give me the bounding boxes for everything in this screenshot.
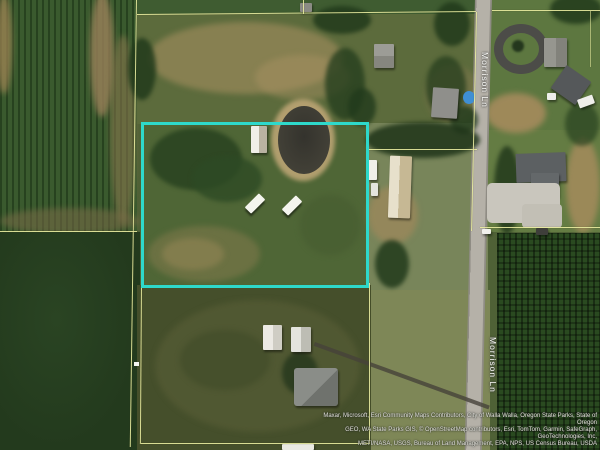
vehicle: [547, 93, 556, 100]
house: [294, 368, 338, 406]
grass-mottle: [180, 330, 270, 390]
attribution-line: METI/NASA, USGS, Bureau of Land Manageme…: [307, 441, 597, 448]
tree-cluster: [434, 2, 470, 46]
map-attribution: Maxar, Microsoft, Esri Community Maps Co…: [307, 413, 597, 448]
pasture-field: [0, 232, 140, 450]
parcel-line-horizontal: [492, 10, 600, 11]
trailer: [368, 160, 377, 180]
tree: [512, 40, 524, 52]
house: [431, 87, 459, 119]
house: [544, 38, 567, 67]
shed-building: [300, 3, 312, 12]
tree-cluster: [128, 38, 156, 100]
barn: [388, 156, 412, 219]
vehicle: [482, 229, 491, 234]
parcel-line-horizontal: [366, 149, 477, 150]
garage-building: [263, 325, 282, 350]
road-label-morrison-ln: Morrison Ln: [480, 52, 490, 108]
parcel-line-vertical: [590, 11, 591, 67]
dirt-patch: [486, 93, 546, 133]
attribution-line: Maxar, Microsoft, Esri Community Maps Co…: [307, 413, 597, 427]
satellite-map[interactable]: Morrison Ln Morrison Ln Maxar, Microsoft…: [0, 0, 600, 450]
tree-cluster: [348, 88, 376, 126]
attribution-line: GEO, WA State Parks GIS, © OpenStreetMap…: [307, 427, 597, 441]
tree-row: [366, 122, 480, 158]
dirt-patch: [566, 138, 600, 233]
vehicle: [536, 228, 548, 235]
parcel-line-horizontal: [0, 231, 137, 232]
selected-parcel-outline[interactable]: [141, 122, 369, 288]
garage-building: [291, 327, 311, 352]
road-label-morrison-ln: Morrison Ln: [488, 337, 498, 393]
tree-cluster: [313, 6, 371, 34]
parcel-line-horizontal: [480, 227, 600, 228]
roadside-marker: [134, 362, 139, 366]
tree-cluster: [565, 102, 599, 146]
trailer: [371, 183, 378, 196]
tree-cluster: [375, 240, 409, 288]
house: [374, 44, 394, 68]
parcel-line-vertical: [303, 0, 304, 14]
concrete-pad: [522, 204, 562, 228]
